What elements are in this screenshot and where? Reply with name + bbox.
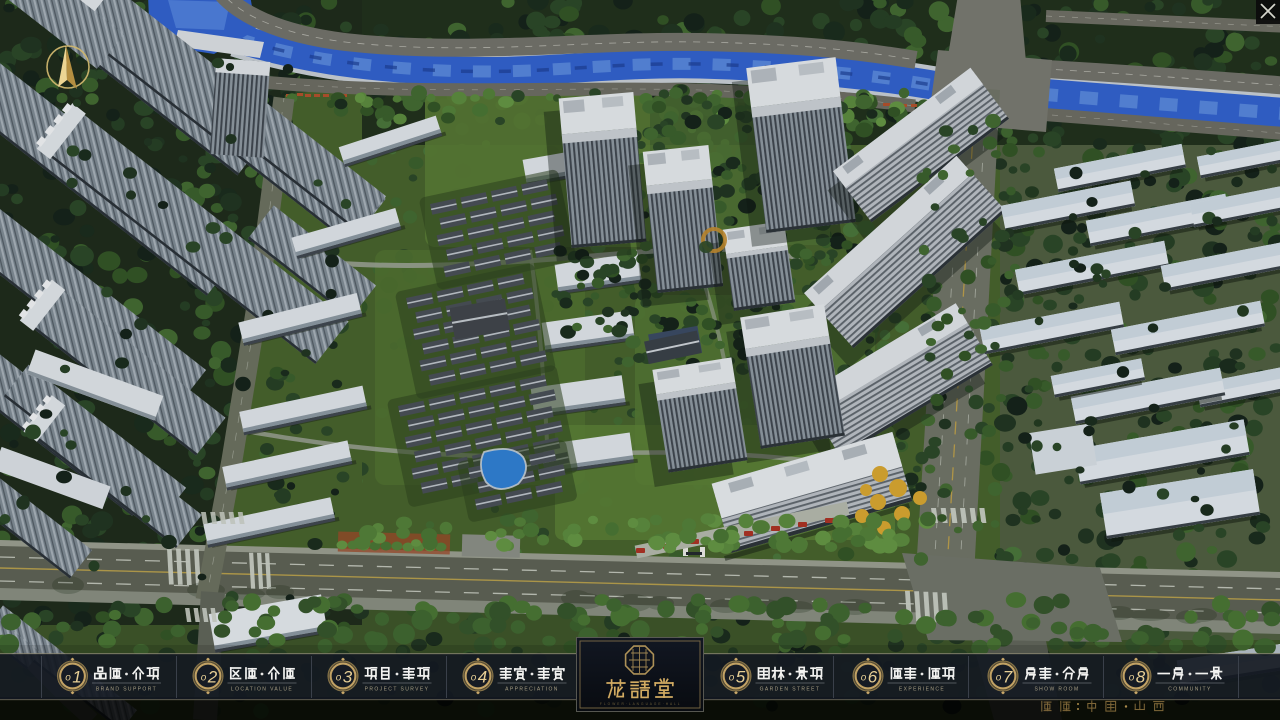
svg-text:APPRECIATION: APPRECIATION (505, 687, 559, 693)
svg-text:4: 4 (478, 668, 487, 687)
svg-text:PROJECT SURVEY: PROJECT SURVEY (365, 687, 430, 693)
svg-text:COMMUNITY: COMMUNITY (1168, 687, 1211, 693)
svg-text:SHOW ROOM: SHOW ROOM (1034, 687, 1079, 693)
svg-text:BRAND SUPPORT: BRAND SUPPORT (96, 687, 157, 693)
svg-text:GARDEN STREET: GARDEN STREET (760, 687, 821, 693)
svg-text:8: 8 (1136, 668, 1146, 687)
svg-text:o: o (729, 673, 735, 684)
svg-text:2: 2 (207, 668, 218, 687)
svg-text:o: o (1129, 673, 1135, 684)
svg-text:LOCATION VALUE: LOCATION VALUE (231, 687, 293, 693)
svg-text:o: o (471, 673, 477, 684)
svg-text:o: o (861, 673, 867, 684)
svg-text:o: o (996, 673, 1002, 684)
svg-text:o: o (336, 673, 342, 684)
svg-text:6: 6 (868, 668, 878, 687)
svg-text:5: 5 (736, 668, 746, 687)
svg-text:7: 7 (1003, 668, 1013, 687)
svg-text:3: 3 (343, 668, 353, 687)
svg-text:o: o (201, 673, 207, 684)
svg-text:o: o (65, 673, 71, 684)
svg-text:1: 1 (72, 668, 81, 687)
svg-text:EXPERIENCE: EXPERIENCE (899, 687, 945, 693)
svg-text:F L O W E R · L A N G U A G E: F L O W E R · L A N G U A G E · H A L L (600, 702, 680, 706)
